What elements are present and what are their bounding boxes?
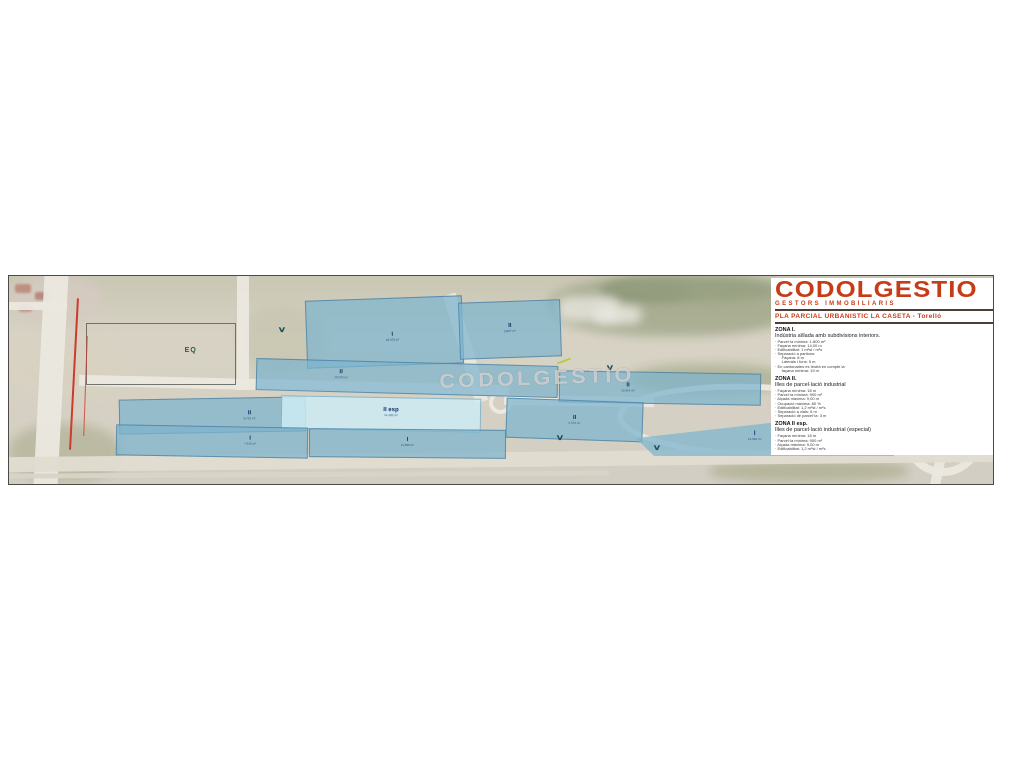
parcel-area: 9.827 m² xyxy=(504,330,516,333)
parcel-zone-I: I18.073 m² xyxy=(305,295,464,368)
parcel-zone-II: II9.827 m² xyxy=(458,299,562,360)
zone-description: Indústria aïllada amb subdivisions inter… xyxy=(775,333,994,339)
zone-section: ZONA II esp.Illes de parcel·lació indust… xyxy=(775,421,994,451)
green-chevron-mark: ∨ xyxy=(653,444,662,452)
parcel-zone-I: I11.028 m² xyxy=(309,428,506,459)
yellow-boundary-mark xyxy=(557,358,571,365)
parcel-area: 6.874 m² xyxy=(568,422,580,425)
parcel-label: I18.073 m² xyxy=(386,332,400,342)
house-roof xyxy=(15,284,31,293)
parcel-area: 21.540 m² xyxy=(748,438,762,441)
zone-sections: ZONA I.Indústria aïllada amb subdivision… xyxy=(775,327,994,452)
parcel-area: 7.942 m² xyxy=(244,443,256,446)
company-logo: CODOLGESTIO xyxy=(775,280,994,300)
parcel-label: I21.540 m² xyxy=(748,431,762,441)
road-vertical-top xyxy=(237,276,249,390)
legend-panel: CODOLGESTIO GESTORS IMMOBILIARIS PLA PAR… xyxy=(771,278,994,455)
zone-item: · Separació de parcel·la: 3 m xyxy=(775,414,994,418)
parcel-zone-II-esp: II esp14.420 m² xyxy=(281,395,482,432)
road-left-connector xyxy=(9,302,67,310)
terrain-patch xyxy=(609,276,779,302)
site-plan-map: EQ I18.073 m²II9.827 m²II10.203 m²II12.6… xyxy=(8,275,994,485)
zone-section: ZONA II.Illes de parcel·lació industrial… xyxy=(775,376,994,418)
zone-section: ZONA I.Indústria aïllada amb subdivision… xyxy=(775,327,994,374)
zone-item: façana mínima: 19 m xyxy=(775,369,994,373)
equipment-parcel: EQ xyxy=(86,323,236,385)
zone-items: · Façana mínima: 18 m· Parcel·la mínima:… xyxy=(775,389,994,418)
equipment-parcel-label: EQ xyxy=(185,347,197,354)
building-cluster xyxy=(595,306,641,324)
parcel-label: II10.203 m² xyxy=(334,369,348,379)
parcel-label: I7.942 m² xyxy=(244,436,256,446)
parcel-label: II9.827 m² xyxy=(504,323,516,333)
parcel-label: II esp14.420 m² xyxy=(383,407,399,417)
parcel-area: 10.203 m² xyxy=(334,376,348,379)
parcel-zone-I: I7.942 m² xyxy=(116,424,309,458)
plan-title: PLA PARCIAL URBANISTIC LA CASETA - Torel… xyxy=(775,313,994,320)
zone-items: · Parcel·la mínima: 1.800 m²· Façana mín… xyxy=(775,340,994,374)
divider xyxy=(775,322,994,324)
green-chevron-mark: ∨ xyxy=(556,434,565,442)
page: EQ I18.073 m²II9.827 m²II10.203 m²II12.6… xyxy=(0,0,1024,768)
parcel-area: 8.751 m² xyxy=(244,417,256,420)
green-chevron-mark: ∨ xyxy=(278,326,287,334)
parcel-area: 12.654 m² xyxy=(621,389,635,392)
parcel-area: 18.073 m² xyxy=(386,339,400,342)
zone-item: · Edificabilitat: 1,2 m²st / m²s xyxy=(775,447,994,451)
parcel-zone-II: II6.874 m² xyxy=(505,398,643,443)
parcel-label: II8.751 m² xyxy=(243,410,255,420)
zone-items: · Façana mínima: 18 m· Parcel·la mínima:… xyxy=(775,434,994,451)
divider xyxy=(775,309,994,311)
parcel-area: 11.028 m² xyxy=(401,444,414,447)
parcel-label: II6.874 m² xyxy=(568,415,580,425)
parcel-area: 14.420 m² xyxy=(383,414,398,417)
parcel-label: I11.028 m² xyxy=(401,437,414,447)
